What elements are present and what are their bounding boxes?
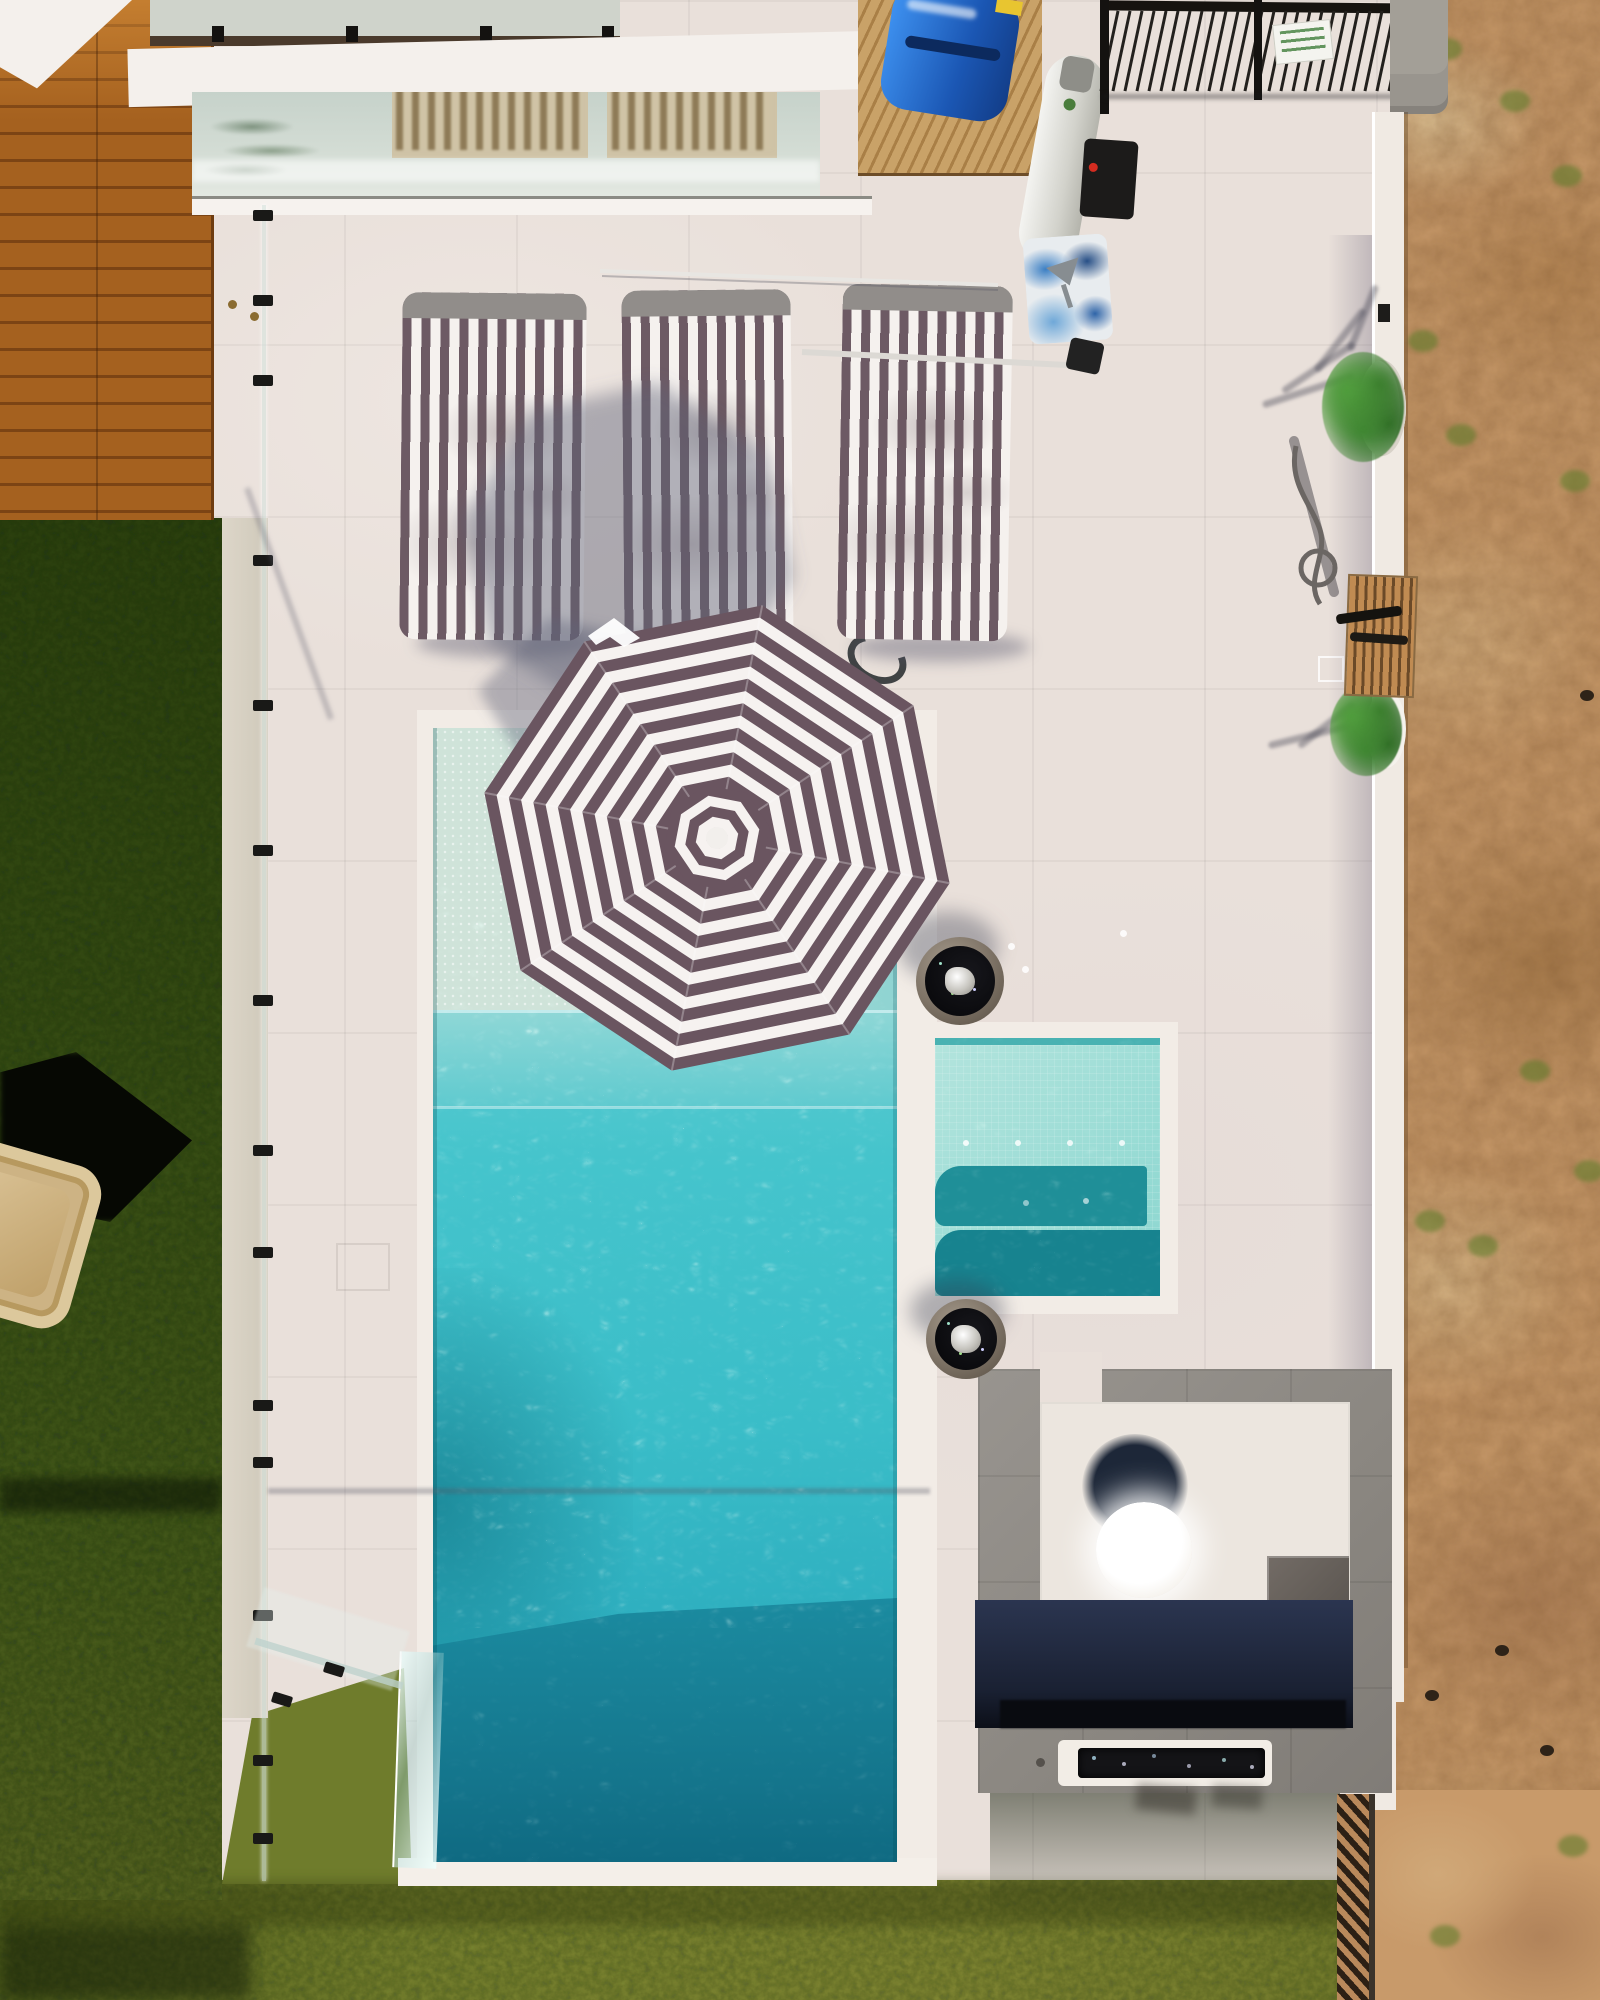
backyard-aerial-photo xyxy=(0,0,1600,2000)
water-drop xyxy=(1022,966,1029,973)
water-drop xyxy=(1008,943,1015,950)
water-drop xyxy=(1120,930,1127,937)
water-drops xyxy=(0,0,1600,2000)
